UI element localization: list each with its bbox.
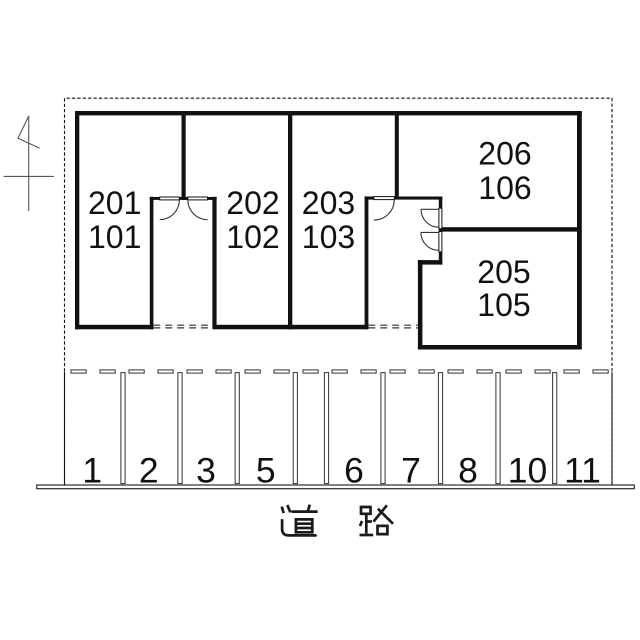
svg-text:3: 3 <box>196 450 216 490</box>
svg-text:8: 8 <box>458 450 478 490</box>
svg-text:1: 1 <box>82 450 102 490</box>
svg-text:105: 105 <box>477 287 530 323</box>
svg-text:10: 10 <box>508 450 548 490</box>
svg-text:201: 201 <box>88 185 141 221</box>
svg-text:6: 6 <box>344 450 364 490</box>
svg-text:102: 102 <box>226 219 279 255</box>
svg-text:2: 2 <box>139 450 159 490</box>
svg-text:206: 206 <box>478 135 531 171</box>
svg-text:202: 202 <box>226 185 279 221</box>
svg-text:11: 11 <box>564 450 601 490</box>
svg-text:5: 5 <box>256 450 276 490</box>
svg-text:205: 205 <box>477 254 530 290</box>
svg-text:7: 7 <box>401 450 421 490</box>
svg-text:103: 103 <box>302 219 355 255</box>
svg-text:101: 101 <box>88 219 141 255</box>
svg-text:106: 106 <box>478 170 531 206</box>
svg-text:203: 203 <box>302 185 355 221</box>
